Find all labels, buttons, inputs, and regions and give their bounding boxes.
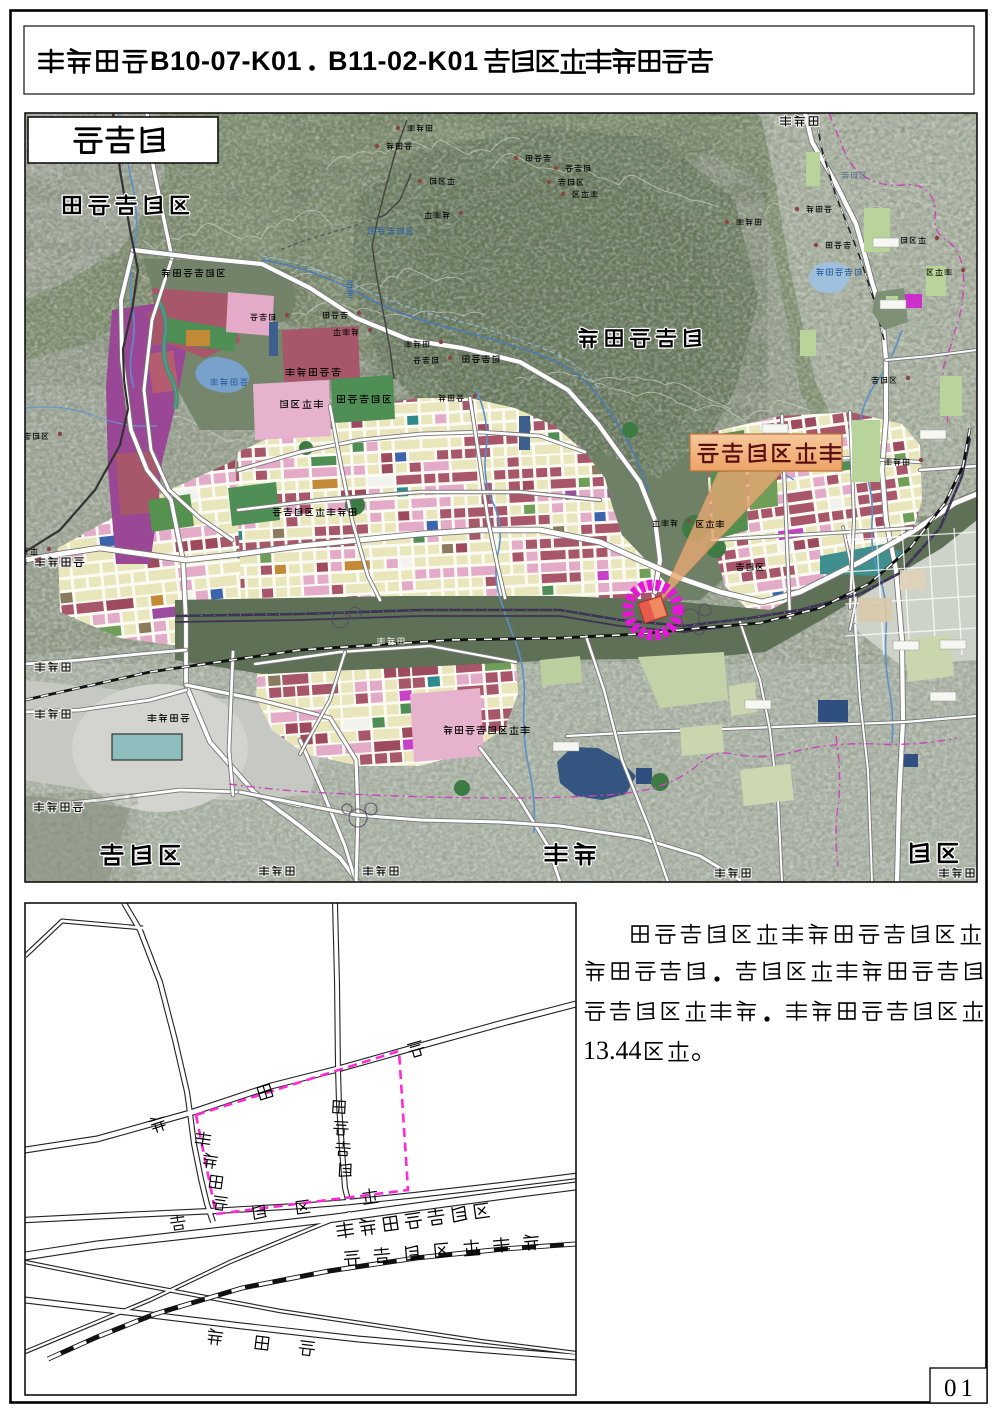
- svg-text:01: 01: [944, 1375, 977, 1402]
- svg-text:13.44: 13.44: [583, 1036, 642, 1065]
- svg-text:B10-07-K01: B10-07-K01: [150, 46, 302, 76]
- svg-text:B11-02-K01: B11-02-K01: [328, 46, 479, 76]
